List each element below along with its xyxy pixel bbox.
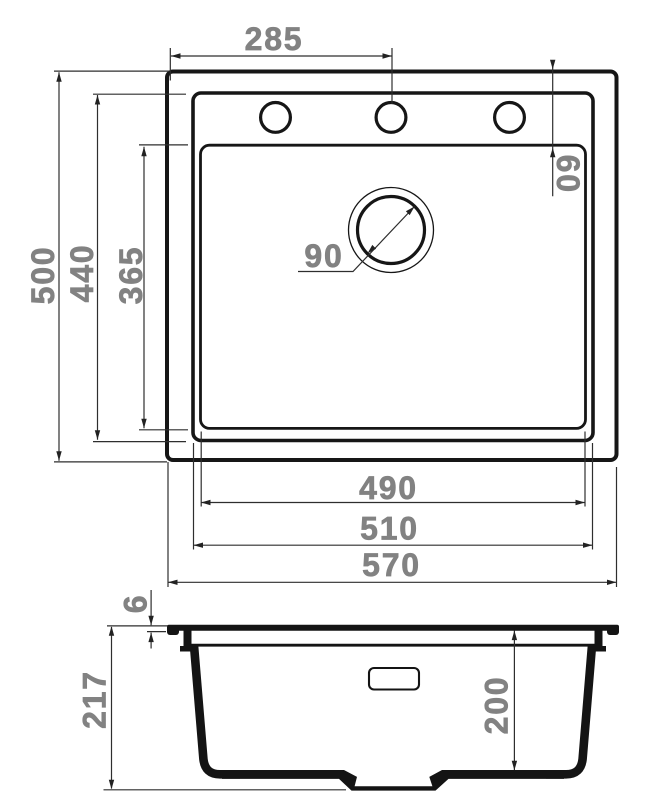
svg-text:60: 60 bbox=[550, 155, 586, 194]
svg-text:440: 440 bbox=[64, 244, 100, 303]
svg-text:365: 365 bbox=[113, 246, 149, 305]
svg-text:90: 90 bbox=[304, 238, 343, 274]
svg-text:6: 6 bbox=[117, 595, 153, 613]
svg-text:285: 285 bbox=[245, 21, 304, 57]
svg-text:510: 510 bbox=[360, 511, 419, 547]
svg-text:490: 490 bbox=[359, 470, 418, 506]
svg-text:217: 217 bbox=[77, 670, 113, 729]
svg-text:200: 200 bbox=[478, 676, 514, 735]
svg-text:500: 500 bbox=[25, 246, 61, 305]
svg-text:570: 570 bbox=[362, 547, 421, 583]
